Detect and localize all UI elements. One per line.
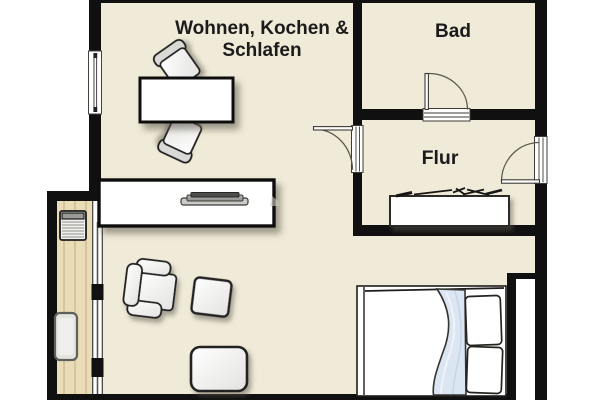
svg-text:Wohnen, Kochen &: Wohnen, Kochen & xyxy=(175,18,349,39)
svg-text:Schlafen: Schlafen xyxy=(222,40,301,61)
svg-text:Bad: Bad xyxy=(435,21,471,42)
svg-text:Flur: Flur xyxy=(422,147,459,169)
